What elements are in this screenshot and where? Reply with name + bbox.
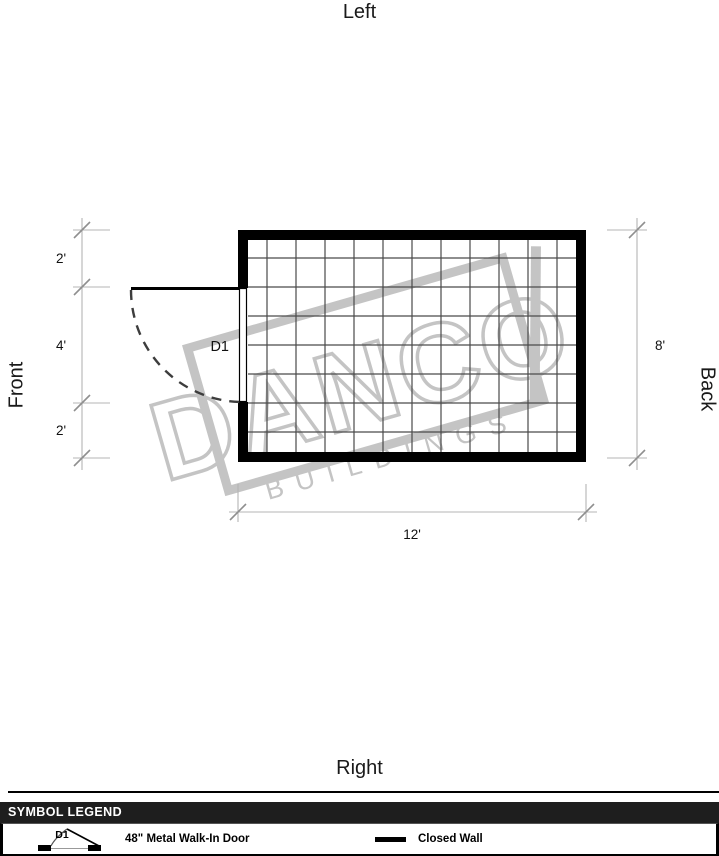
dim-bottom-total: 12' <box>403 527 421 542</box>
dimension-right: 8' <box>607 218 665 470</box>
dim-left-segment-1: 2' <box>56 251 66 266</box>
legend-divider <box>8 791 719 793</box>
door-frame <box>240 289 247 402</box>
legend-title: SYMBOL LEGEND <box>8 805 122 819</box>
legend-door-symbol-label: D1 <box>55 829 69 841</box>
symbol-legend: SYMBOL LEGEND D1 48" Metal Walk-In Door … <box>0 791 719 856</box>
door-label: D1 <box>210 339 229 355</box>
closed-wall-legend-icon <box>375 837 406 842</box>
orientation-label-right-wall: Right <box>0 757 719 780</box>
legend-body: D1 48" Metal Walk-In Door Closed Wall <box>0 823 719 856</box>
dim-right-total: 8' <box>655 338 665 353</box>
legend-item-closed-wall: Closed Wall <box>418 833 483 845</box>
dimension-left: 2' 4' 2' <box>56 218 110 470</box>
legend-header: SYMBOL LEGEND <box>0 802 719 823</box>
walk-in-door-legend-icon: D1 <box>37 826 105 852</box>
dim-left-segment-2: 4' <box>56 338 66 353</box>
floor-plan-page: Left Right Front Back DANCO BUILDINGS <box>0 0 719 856</box>
legend-item-walk-in-door: 48" Metal Walk-In Door <box>125 833 250 845</box>
dim-left-segment-3: 2' <box>56 423 66 438</box>
floor-plan-drawing: DANCO BUILDINGS <box>0 0 719 760</box>
